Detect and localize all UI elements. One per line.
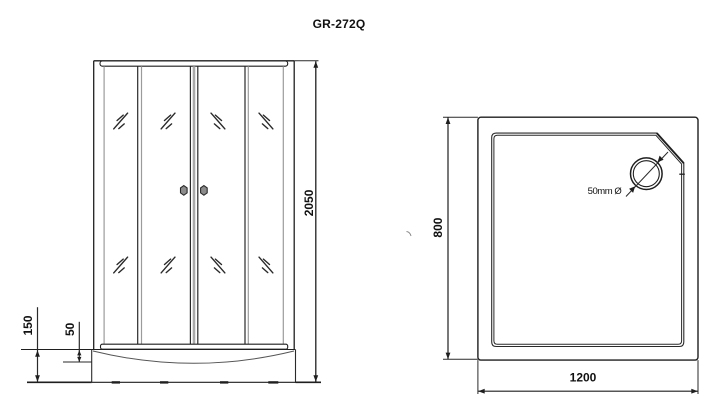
svg-text:GR-272Q: GR-272Q [313, 17, 366, 31]
svg-text:1200: 1200 [570, 371, 597, 385]
svg-text:800: 800 [431, 217, 445, 237]
svg-text:50mm Ø: 50mm Ø [588, 186, 623, 197]
svg-text:50: 50 [63, 322, 77, 336]
svg-text:2050: 2050 [302, 189, 316, 216]
svg-text:150: 150 [21, 315, 35, 335]
